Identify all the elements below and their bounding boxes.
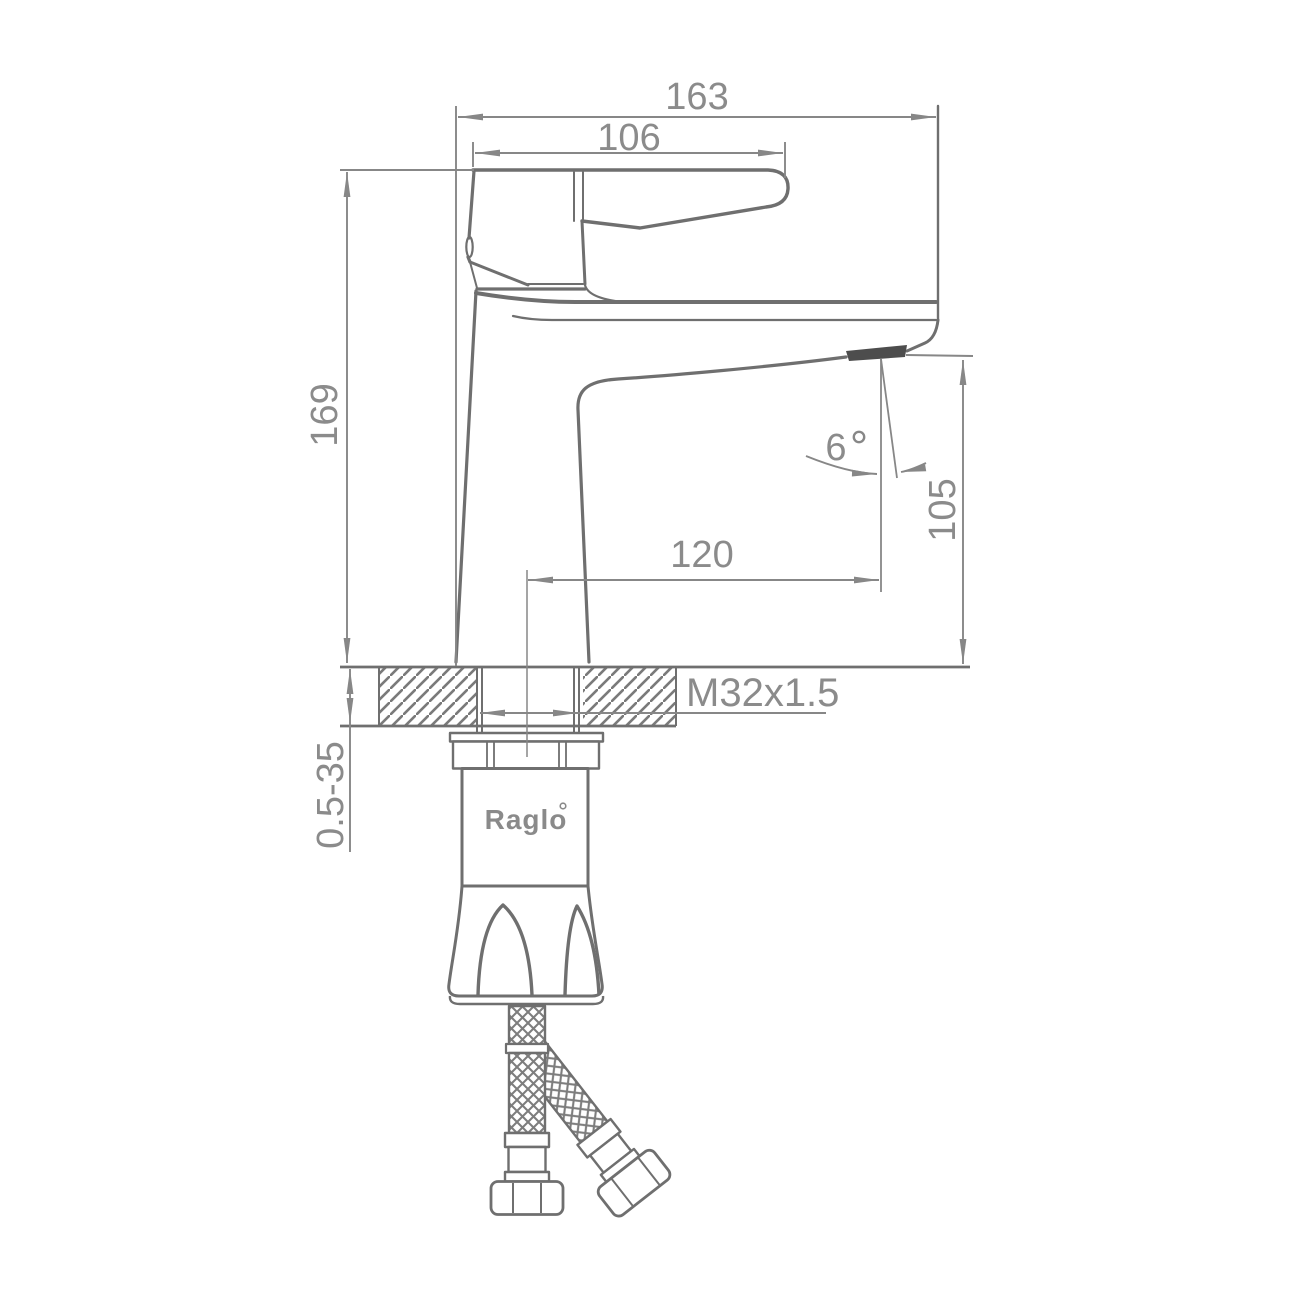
- handle-lever-outline: [473, 170, 788, 228]
- vertical-hose-braid-lower: [509, 1053, 545, 1133]
- ext-line-outlet-top: [906, 355, 973, 356]
- cartridge-right-edge: [582, 221, 585, 284]
- handle-pivot-detail: [466, 237, 472, 257]
- dimension-lines-group: [340, 106, 973, 852]
- deck-hatch-right: [583, 668, 676, 725]
- label-spout-reach: 120: [670, 534, 733, 576]
- label-total-height: 169: [304, 383, 346, 446]
- mounting-deck-group: [340, 667, 970, 733]
- degree-symbol: [854, 432, 864, 442]
- label-deck-thickness-range: 0.5-35: [310, 741, 352, 849]
- under-deck-group: [449, 733, 603, 1004]
- spout-top-edge: [476, 293, 936, 302]
- handle-base-shoulder: [470, 262, 528, 285]
- vertical-hose-nut: [491, 1182, 563, 1215]
- hose-joint-band: [506, 1044, 548, 1053]
- spout-underside-curve: [578, 357, 846, 662]
- spout-parting-line: [513, 316, 936, 320]
- deck-hatch-left: [379, 668, 477, 725]
- mounting-nut: [453, 742, 599, 769]
- drawing-svg: 163 106 169 0.5-35 120 105 6 M32x1.5 Rag…: [0, 0, 1300, 1300]
- spout-right-corner: [907, 320, 938, 351]
- label-overall-length: 163: [665, 76, 728, 118]
- brand-logo-text: Raglo: [485, 804, 568, 835]
- vertical-hose-collar: [505, 1133, 549, 1147]
- vertical-supply-hose: [491, 1006, 563, 1215]
- vertical-hose-collar2: [505, 1172, 549, 1182]
- label-spout-angle: 6: [825, 427, 846, 469]
- body-left-edge: [456, 291, 476, 662]
- label-handle-length: 106: [597, 117, 660, 159]
- label-thread-spec: M32x1.5: [686, 671, 839, 715]
- vertical-hose-braid-upper: [509, 1006, 545, 1044]
- vertical-hose-tube: [509, 1147, 546, 1172]
- label-outlet-height: 105: [922, 478, 964, 541]
- faucet-body-group: [456, 106, 938, 662]
- collar-to-spout-curve: [585, 285, 622, 302]
- threaded-stem-walls: [477, 667, 579, 733]
- dimension-labels-group: 163 106 169 0.5-35 120 105 6 M32x1.5 Rag…: [304, 76, 964, 849]
- outlet-tilted-ray: [881, 359, 897, 478]
- angle-arc-right: [901, 463, 926, 472]
- faucet-technical-drawing: 163 106 169 0.5-35 120 105 6 M32x1.5 Rag…: [0, 0, 1300, 1300]
- aerator-outlet: [846, 345, 907, 361]
